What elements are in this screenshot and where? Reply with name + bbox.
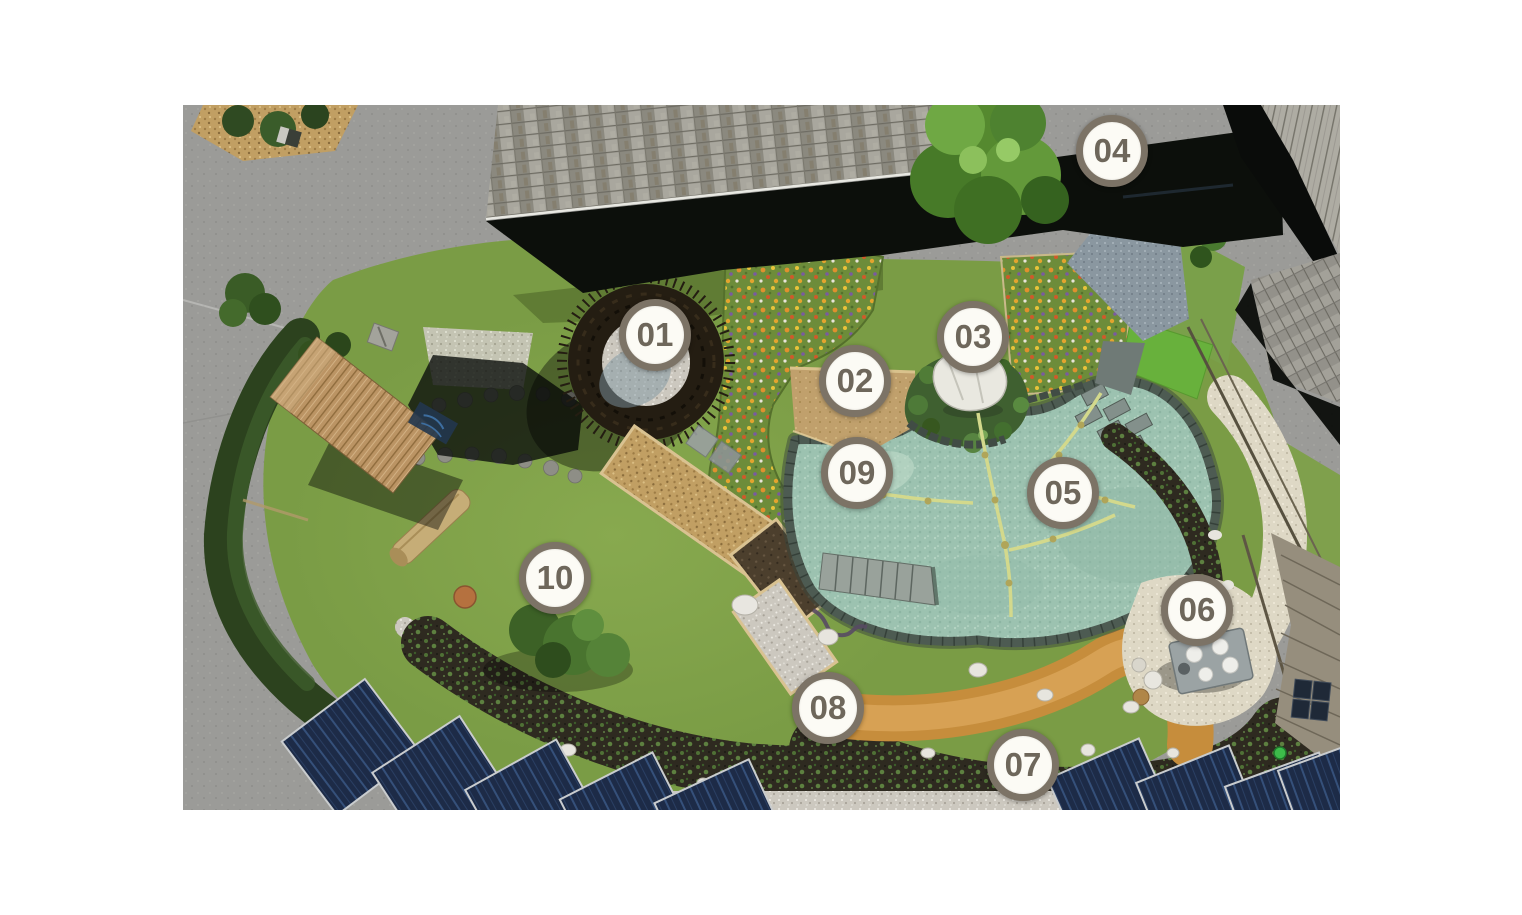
marker-label: 03 xyxy=(955,318,992,356)
marker-label: 10 xyxy=(537,559,574,597)
map-marker-08[interactable]: 08 xyxy=(792,672,864,744)
map-marker-03[interactable]: 03 xyxy=(937,301,1009,373)
map-marker-09[interactable]: 09 xyxy=(821,437,893,509)
marker-label: 08 xyxy=(810,689,847,727)
marker-label: 09 xyxy=(839,454,876,492)
map-marker-04[interactable]: 04 xyxy=(1076,115,1148,187)
map-marker-05[interactable]: 05 xyxy=(1027,457,1099,529)
marker-label: 07 xyxy=(1005,746,1042,784)
marker-layer: 01020304050607080910 xyxy=(183,105,1340,810)
map-marker-01[interactable]: 01 xyxy=(619,299,691,371)
page: 01020304050607080910 xyxy=(0,0,1522,915)
garden-aerial-photo: 01020304050607080910 xyxy=(183,105,1340,810)
marker-label: 06 xyxy=(1179,591,1216,629)
marker-label: 05 xyxy=(1045,474,1082,512)
map-marker-06[interactable]: 06 xyxy=(1161,574,1233,646)
map-marker-10[interactable]: 10 xyxy=(519,542,591,614)
map-marker-07[interactable]: 07 xyxy=(987,729,1059,801)
marker-label: 02 xyxy=(837,362,874,400)
map-marker-02[interactable]: 02 xyxy=(819,345,891,417)
marker-label: 04 xyxy=(1094,132,1131,170)
marker-label: 01 xyxy=(637,316,674,354)
